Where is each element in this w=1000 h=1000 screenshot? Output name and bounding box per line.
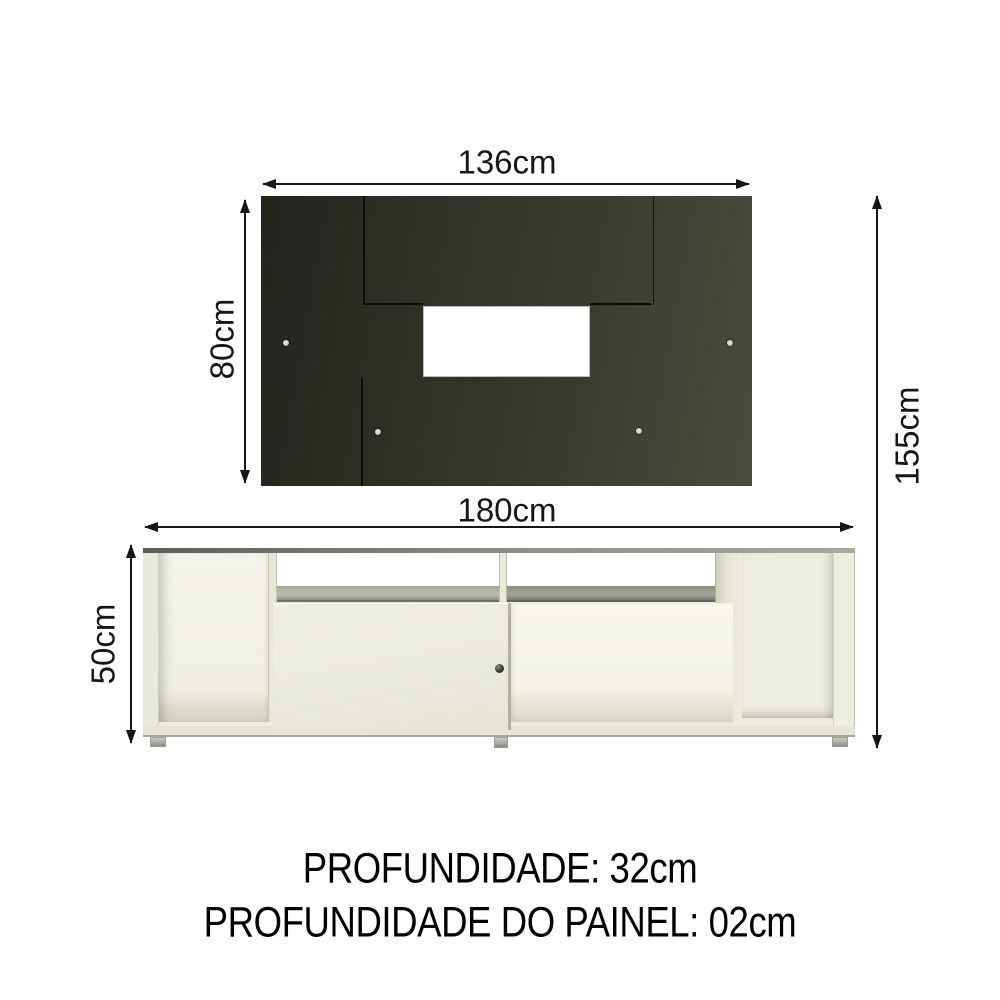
rack-center-divider [499, 553, 507, 602]
panel-seam-horizontal-right [590, 303, 651, 305]
rack-left-side-panel [143, 553, 159, 737]
dim-label-panel-width: 136cm [457, 146, 556, 179]
panel-seam-horizontal-left [363, 303, 423, 305]
panel-seam-vertical [361, 378, 363, 486]
rack-shelf-opening-right [507, 553, 715, 586]
dim-arrow-panel-width [263, 183, 749, 185]
screw-icon [375, 429, 381, 435]
rack-right-side-panel [833, 553, 855, 737]
rack-open-compartment [508, 603, 733, 722]
depth-note: PROFUNDIDADE: 32cm [303, 848, 697, 891]
dim-arrow-total-height [876, 196, 878, 748]
sliding-door [273, 603, 508, 730]
rack-foot [150, 737, 166, 747]
dim-label-total-height: 155cm [891, 386, 924, 485]
dim-label-rack-height: 50cm [87, 604, 120, 685]
door-knob [495, 664, 504, 673]
rack-shelf-left [277, 586, 499, 602]
rack-shelf-opening-left [277, 553, 499, 586]
tv-cutout [423, 306, 590, 377]
dim-arrow-rack-height [130, 545, 132, 743]
dim-label-panel-height: 80cm [206, 299, 239, 380]
panel-center-piece [363, 196, 654, 305]
rack-right-compartment [742, 553, 833, 718]
dim-label-rack-width: 180cm [457, 494, 556, 527]
rack-left-compartment [159, 553, 268, 722]
screw-icon [283, 340, 289, 346]
screw-icon [727, 340, 733, 346]
rack-foot [494, 737, 508, 748]
screw-icon [636, 428, 642, 434]
product-dimension-diagram: 136cm 80cm 155cm 180cm 50cm PROFUNDIDADE… [0, 0, 1000, 1000]
dim-arrow-panel-height [244, 200, 246, 483]
tv-rack [143, 548, 855, 737]
rack-foot [832, 737, 848, 747]
panel-depth-note: PROFUNDIDADE DO PAINEL: 02cm [204, 902, 797, 945]
rack-shelf-right [507, 586, 715, 602]
